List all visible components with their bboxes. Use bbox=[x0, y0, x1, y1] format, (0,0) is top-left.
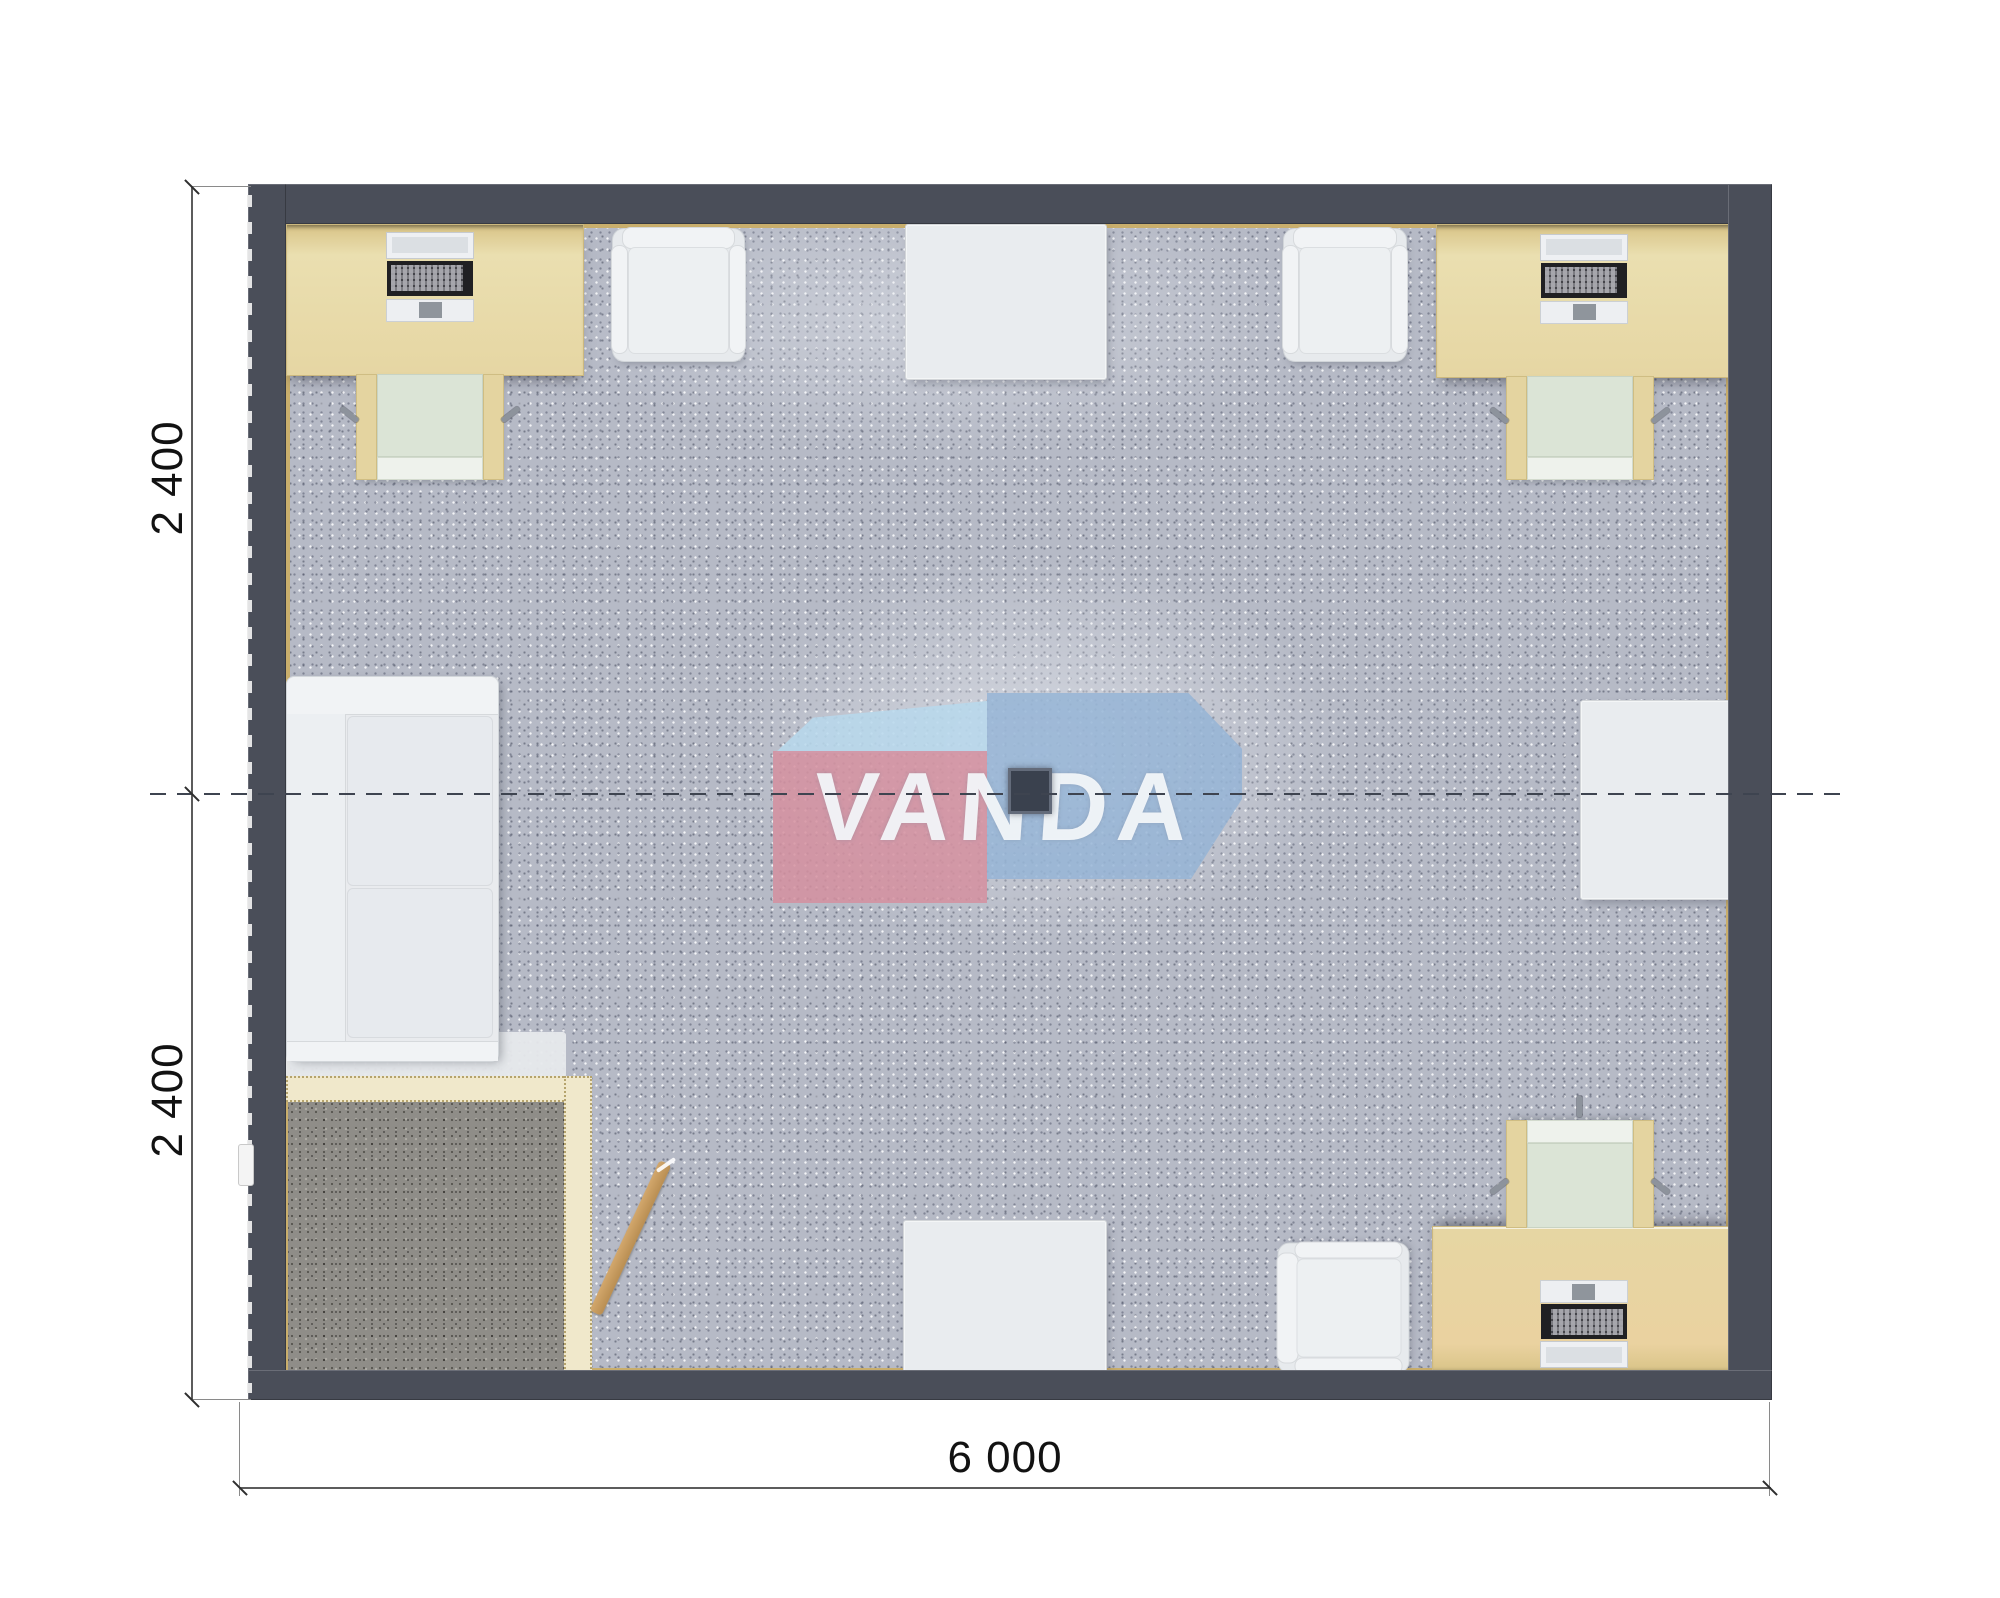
keyboard bbox=[1541, 263, 1627, 298]
table-right-wall bbox=[1580, 700, 1732, 900]
keyboard-keys bbox=[391, 265, 463, 291]
armchair-backrest bbox=[1293, 227, 1398, 249]
entry-door-handle bbox=[238, 1144, 254, 1186]
chair-seat bbox=[1527, 376, 1633, 457]
armchair-armrest bbox=[729, 245, 746, 355]
dimension-extension bbox=[239, 1402, 240, 1496]
table-bottom-center bbox=[903, 1220, 1107, 1374]
sofa bbox=[286, 676, 499, 1062]
chair-armrest bbox=[1633, 1120, 1654, 1228]
armchair-seat bbox=[1299, 247, 1391, 354]
chair-armrest bbox=[1506, 376, 1527, 480]
chair-armrest bbox=[1633, 376, 1654, 480]
monitor bbox=[1540, 234, 1628, 261]
chair-armrest bbox=[1506, 1120, 1527, 1228]
dimension-label-left-bottom: 2 400 bbox=[143, 1042, 193, 1157]
dimension-extension bbox=[191, 1399, 251, 1400]
dimension-line-bottom bbox=[240, 1487, 1771, 1489]
armchair-seat bbox=[1297, 1259, 1402, 1358]
sofa-armrest-top bbox=[287, 677, 498, 715]
monitor-screen bbox=[1546, 239, 1622, 255]
monitor bbox=[1540, 1341, 1628, 1368]
mouse-pad bbox=[1573, 304, 1596, 320]
armchair-backrest bbox=[622, 227, 735, 249]
chair-backrest bbox=[377, 457, 483, 480]
keyboard bbox=[1541, 1304, 1627, 1339]
computer-top-right bbox=[1540, 234, 1628, 324]
desk-pad bbox=[1540, 301, 1628, 324]
sofa-cushion bbox=[347, 716, 493, 886]
chair-armrest bbox=[483, 374, 504, 480]
monitor-screen bbox=[1546, 1347, 1622, 1363]
keyboard-keys bbox=[1551, 1309, 1623, 1335]
entry-mat bbox=[288, 1100, 564, 1370]
desk-chair-top-right bbox=[1506, 376, 1654, 480]
armchair-armrest bbox=[611, 245, 628, 355]
vestibule-partition-right bbox=[564, 1076, 592, 1372]
wall-right bbox=[1728, 184, 1772, 1400]
dimension-extension bbox=[1769, 1402, 1770, 1496]
armchair-top-right bbox=[1283, 228, 1407, 362]
chair-seat bbox=[377, 374, 483, 457]
dimension-label-left-top: 2 400 bbox=[143, 420, 193, 535]
section-dashed-line bbox=[150, 793, 1850, 795]
desk-pad bbox=[386, 299, 474, 322]
sofa-armrest-bottom bbox=[287, 1041, 498, 1061]
mouse-pad bbox=[419, 302, 442, 318]
desk-chair-bottom-right bbox=[1506, 1120, 1654, 1228]
armchair-top-left bbox=[612, 228, 745, 362]
chair-backrest bbox=[1527, 457, 1633, 480]
sofa-backrest bbox=[287, 714, 346, 1042]
chair-backrest bbox=[1527, 1120, 1633, 1143]
ceiling-lamp-icon bbox=[1008, 768, 1052, 814]
floor-plan-canvas: VANDA 2 400 2 400 6 000 bbox=[0, 0, 2000, 1598]
desk-pad bbox=[1540, 1280, 1628, 1303]
dimension-label-bottom: 6 000 bbox=[947, 1433, 1062, 1483]
chair-seat bbox=[1527, 1143, 1633, 1228]
armchair-seat bbox=[628, 247, 729, 354]
armchair-armrest bbox=[1294, 1242, 1402, 1259]
keyboard bbox=[387, 261, 473, 296]
vestibule-partition-top bbox=[286, 1076, 592, 1102]
monitor-screen bbox=[392, 237, 468, 253]
wall-top bbox=[248, 184, 1772, 224]
dimension-extension bbox=[191, 186, 251, 187]
computer-bottom-right bbox=[1540, 1280, 1628, 1368]
desk-chair-top-left bbox=[356, 374, 504, 480]
wall-left bbox=[248, 184, 286, 1400]
armchair-armrest bbox=[1391, 245, 1408, 355]
armchair-backrest bbox=[1277, 1253, 1299, 1364]
sofa-cushion bbox=[347, 888, 493, 1038]
wall-left-cladding bbox=[247, 195, 252, 1393]
monitor bbox=[386, 232, 474, 259]
mouse-pad bbox=[1572, 1284, 1595, 1300]
armchair-armrest bbox=[1282, 245, 1299, 355]
armchair-bottom bbox=[1278, 1243, 1410, 1374]
chair-foot bbox=[1577, 1096, 1582, 1117]
table-top-center bbox=[905, 224, 1107, 380]
chair-armrest bbox=[356, 374, 377, 480]
computer-top-left bbox=[386, 232, 474, 322]
wall-bottom bbox=[248, 1370, 1772, 1400]
keyboard-keys bbox=[1545, 267, 1617, 293]
